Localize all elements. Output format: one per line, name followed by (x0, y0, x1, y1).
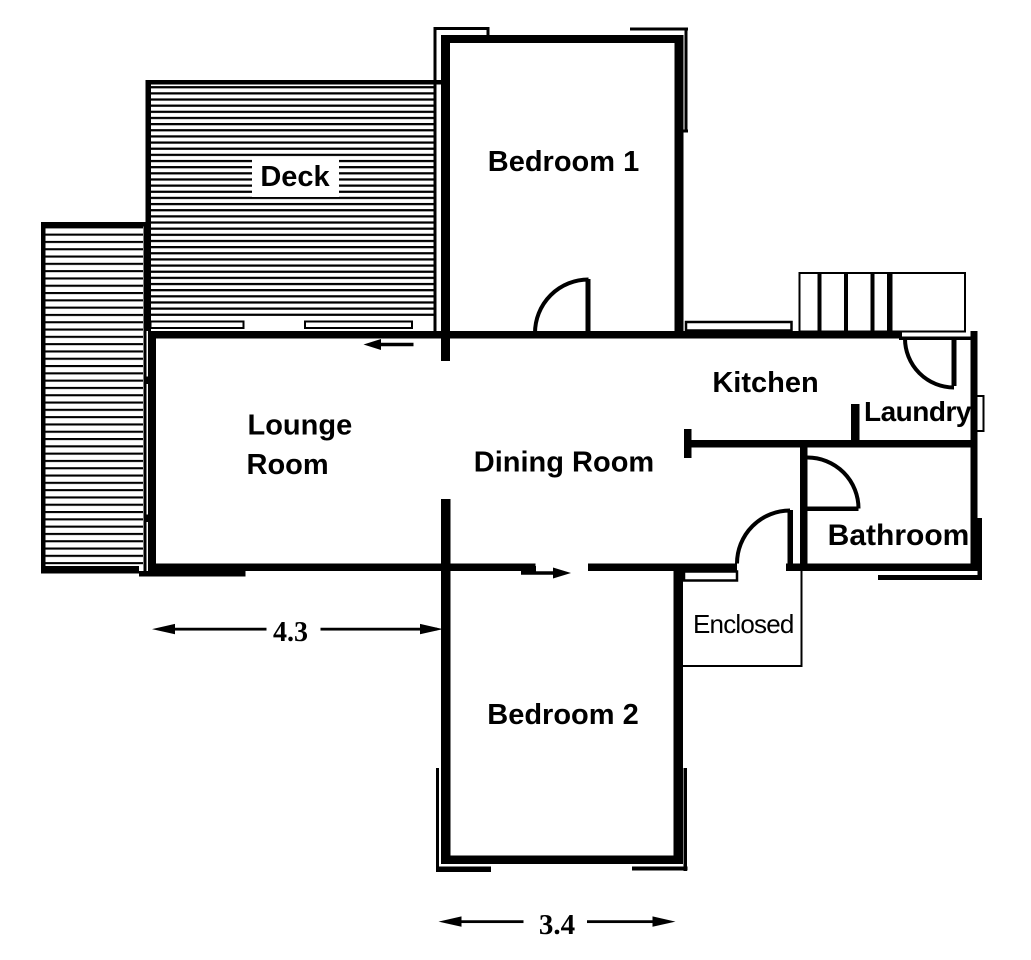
svg-text:4.3: 4.3 (273, 617, 308, 648)
svg-text:Bathroom: Bathroom (828, 519, 970, 552)
svg-text:Dining Room: Dining Room (474, 447, 654, 479)
svg-text:Lounge: Lounge (248, 410, 353, 442)
svg-text:Kitchen: Kitchen (712, 367, 818, 399)
svg-text:3.4: 3.4 (539, 909, 575, 941)
svg-text:Bedroom 1: Bedroom 1 (488, 146, 639, 178)
svg-text:Bedroom 2: Bedroom 2 (487, 699, 638, 731)
svg-text:Room: Room (247, 449, 329, 481)
svg-text:Laundry: Laundry (864, 396, 972, 427)
svg-text:Enclosed: Enclosed (693, 609, 794, 639)
svg-text:Deck: Deck (260, 161, 330, 193)
